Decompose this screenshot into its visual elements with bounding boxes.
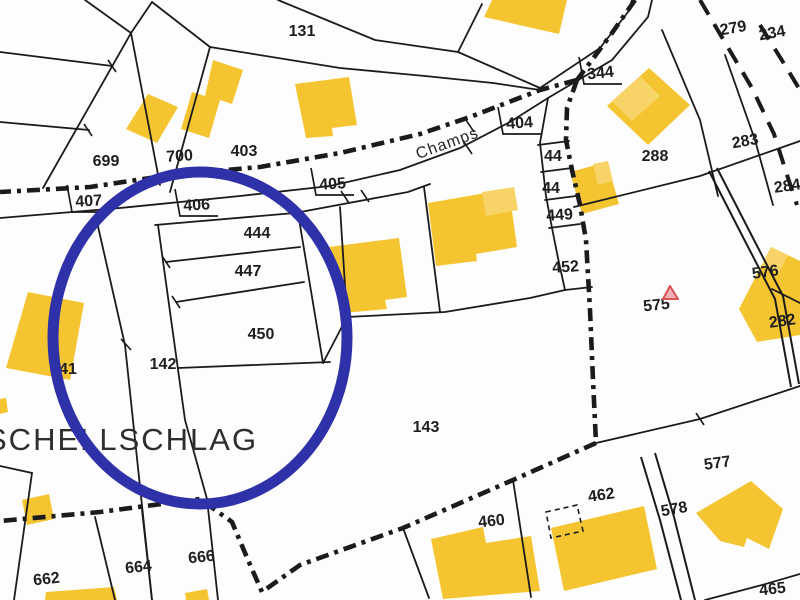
- parcel-label-131: 131: [289, 23, 316, 40]
- parcel-label-666: 666: [187, 548, 215, 568]
- parcel-label-344: 344: [586, 64, 614, 84]
- parcel-label-44: 44: [542, 180, 560, 197]
- parcel-label-452: 452: [552, 258, 580, 277]
- parcel-label-662: 662: [32, 570, 60, 590]
- parcel-label-284: 284: [773, 176, 800, 197]
- parcel-label-700: 700: [166, 147, 194, 166]
- parcel-label-460: 460: [477, 512, 505, 532]
- parcel-label-664: 664: [124, 558, 152, 578]
- cadastral-map[interactable]: 1312792343444044037006994074064054444449…: [0, 0, 800, 600]
- parcel-label-406: 406: [183, 196, 211, 214]
- parcel-label-143: 143: [413, 419, 440, 436]
- parcel-label-404: 404: [506, 114, 534, 133]
- parcel-label-447: 447: [235, 263, 262, 280]
- parcel-label-465: 465: [758, 580, 786, 600]
- parcel-label-449: 449: [546, 206, 574, 225]
- parcel-label-407: 407: [75, 192, 103, 210]
- parcel-label-403: 403: [231, 143, 258, 160]
- parcel-label-142: 142: [150, 356, 177, 373]
- parcel-label-405: 405: [319, 175, 347, 194]
- parcel-label-288: 288: [642, 148, 669, 165]
- parcel-label-444: 444: [244, 225, 271, 242]
- map-viewport[interactable]: 1312792343444044037006994074064054444449…: [0, 0, 800, 600]
- place-name-label: SCHELLSCHLAG: [0, 422, 258, 457]
- parcel-label-699: 699: [93, 153, 120, 170]
- parcel-label-44: 44: [544, 148, 562, 165]
- parcel-label-450: 450: [248, 326, 275, 343]
